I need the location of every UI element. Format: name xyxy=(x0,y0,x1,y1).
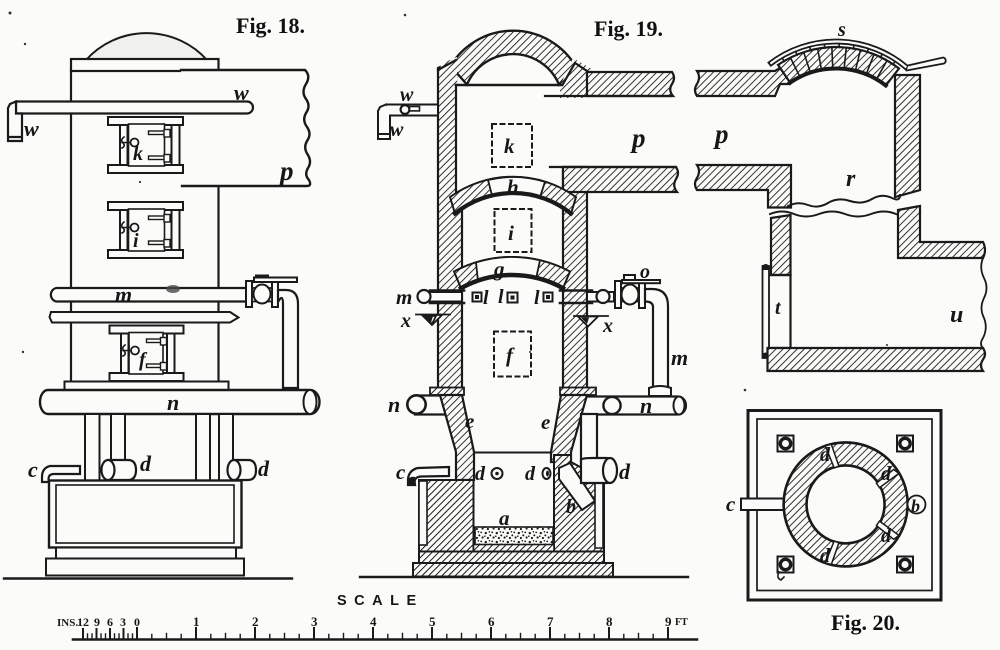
svg-text:x: x xyxy=(602,315,613,337)
svg-text:k: k xyxy=(133,143,143,165)
svg-text:r: r xyxy=(846,166,856,192)
svg-text:Fig. 19.: Fig. 19. xyxy=(594,16,663,41)
svg-text:b: b xyxy=(566,496,576,518)
svg-text:0: 0 xyxy=(134,615,140,629)
svg-text:8: 8 xyxy=(606,614,613,629)
svg-text:i: i xyxy=(508,221,514,245)
svg-text:d: d xyxy=(258,456,270,481)
svg-text:e: e xyxy=(465,409,474,433)
svg-text:6: 6 xyxy=(107,615,113,629)
svg-text:g: g xyxy=(493,257,505,281)
svg-text:d: d xyxy=(881,525,892,547)
svg-text:l: l xyxy=(534,287,540,309)
svg-text:n: n xyxy=(167,390,179,415)
svg-text:o: o xyxy=(640,261,650,283)
svg-text:6: 6 xyxy=(488,614,495,629)
svg-text:s: s xyxy=(837,19,846,41)
svg-text:c: c xyxy=(726,492,736,516)
svg-text:c: c xyxy=(396,460,406,484)
svg-text:w: w xyxy=(24,116,39,141)
svg-text:d: d xyxy=(525,463,536,485)
svg-text:7: 7 xyxy=(547,614,554,629)
svg-text:Fig. 20.: Fig. 20. xyxy=(831,610,900,635)
svg-text:p: p xyxy=(630,123,646,153)
svg-text:4: 4 xyxy=(370,614,377,629)
svg-text:w: w xyxy=(234,80,249,105)
svg-text:m: m xyxy=(671,345,688,370)
svg-text:w: w xyxy=(400,84,414,106)
svg-text:3: 3 xyxy=(120,615,126,629)
svg-text:p: p xyxy=(278,156,294,186)
svg-text:5: 5 xyxy=(429,614,436,629)
svg-text:12: 12 xyxy=(77,615,89,629)
svg-text:INS.: INS. xyxy=(57,617,78,629)
svg-text:m: m xyxy=(396,285,412,309)
svg-text:c: c xyxy=(28,457,38,482)
svg-text:m: m xyxy=(115,282,132,307)
svg-text:l: l xyxy=(498,286,504,308)
svg-text:2: 2 xyxy=(252,614,259,629)
svg-text:k: k xyxy=(504,134,515,158)
svg-text:n: n xyxy=(640,393,652,418)
svg-text:d: d xyxy=(619,459,631,484)
svg-text:9: 9 xyxy=(665,614,672,629)
svg-text:d: d xyxy=(475,463,486,485)
svg-text:w: w xyxy=(390,119,404,141)
svg-text:d: d xyxy=(820,444,831,466)
svg-text:Fig. 18.: Fig. 18. xyxy=(236,13,305,38)
svg-text:a: a xyxy=(499,506,510,530)
svg-text:SCALE: SCALE xyxy=(337,593,424,609)
svg-text:e: e xyxy=(541,410,550,434)
svg-text:FT: FT xyxy=(675,617,688,628)
svg-text:d: d xyxy=(881,463,892,485)
svg-text:p: p xyxy=(713,119,729,149)
svg-text:i: i xyxy=(133,230,139,252)
svg-text:n: n xyxy=(388,392,400,417)
svg-text:h: h xyxy=(507,175,519,199)
svg-text:x: x xyxy=(400,310,411,332)
svg-text:9: 9 xyxy=(94,615,100,629)
svg-text:d: d xyxy=(820,545,831,567)
svg-text:b: b xyxy=(911,496,920,516)
svg-text:u: u xyxy=(950,302,963,328)
svg-text:1: 1 xyxy=(193,614,200,629)
svg-text:3: 3 xyxy=(311,614,318,629)
svg-text:d: d xyxy=(140,451,152,476)
svg-text:l: l xyxy=(483,287,489,309)
